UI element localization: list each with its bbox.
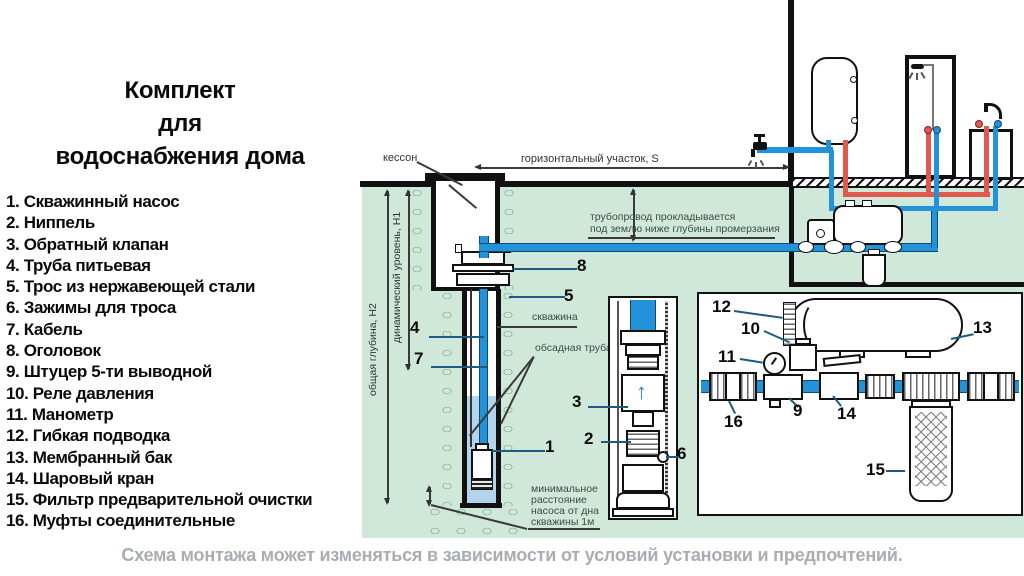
- callout-13: 13: [973, 318, 992, 338]
- cold-pipe: [826, 140, 831, 150]
- legend-item: 1. Скважинный насос: [6, 191, 362, 212]
- label-dynamic-level: динамический уровень, Н1: [391, 185, 403, 370]
- callout-15: 15: [866, 460, 885, 480]
- union-coupling: [865, 374, 895, 399]
- cold-valve-icon: [933, 126, 941, 134]
- water-heater: [811, 57, 858, 145]
- pipe-fitting: [884, 241, 902, 253]
- callout-1: 1: [545, 437, 554, 457]
- pipe-fitting-hex: [620, 330, 666, 345]
- supply-riser: [931, 208, 938, 248]
- nipple-body: [626, 430, 660, 457]
- leader-2: [601, 441, 631, 443]
- legend-item: 8. Оголовок: [6, 340, 362, 361]
- pipe-fitting: [798, 241, 814, 253]
- label-well: скважина: [532, 311, 578, 323]
- pipe-fitting: [850, 241, 866, 253]
- callout-12: 12: [712, 297, 731, 317]
- ball-valve-body: [819, 372, 859, 400]
- cold-valve-icon: [994, 120, 1002, 128]
- house-wall: [788, 0, 794, 182]
- pipeline-note-1: трубопровод прокладывается: [590, 211, 735, 223]
- legend-item: 2. Ниппель: [6, 212, 362, 233]
- station-tank-port: [862, 200, 872, 207]
- legend-item: 13. Мембранный бак: [6, 447, 362, 468]
- footer-caption: Схема монтажа может изменяться в зависим…: [0, 545, 1024, 566]
- caisson-floor: [431, 287, 500, 291]
- valve-neck: [632, 411, 654, 427]
- sink-pedestal: [969, 129, 1013, 180]
- tank-foot: [905, 350, 931, 358]
- legend-item: 15. Фильтр предварительной очистки: [6, 489, 362, 510]
- leader-4: [429, 336, 484, 338]
- label-total-depth: общая глубина, Н2: [367, 235, 379, 465]
- min-distance-underline: [528, 528, 600, 530]
- cold-pipe: [993, 126, 998, 209]
- manometer-dial: [763, 352, 786, 375]
- station-gauge: [816, 229, 825, 238]
- hot-pipe: [926, 133, 931, 195]
- ball-valve-handle: [823, 354, 862, 367]
- hot-pipe: [843, 140, 848, 196]
- fitting-drain: [769, 399, 781, 408]
- shower-spray: [916, 73, 918, 80]
- label-horizontal-section: горизонтальный участок, S: [521, 153, 659, 165]
- callout-4: 4: [410, 318, 419, 338]
- legend-item: 11. Манометр: [6, 404, 362, 425]
- legend-item: 5. Трос из нержавеющей стали: [6, 276, 362, 297]
- heater-knob: [851, 117, 858, 124]
- legend-item: 16. Муфты соединительные: [6, 510, 362, 531]
- callout-5: 5: [564, 286, 573, 306]
- arrow-right-icon: [783, 164, 790, 170]
- callout-7: 7: [414, 349, 423, 369]
- well-casing-left: [462, 289, 467, 506]
- pressure-relay-body: [789, 344, 817, 371]
- leader-15: [886, 470, 905, 472]
- station-tank-port: [845, 200, 855, 207]
- well-label-leader: [497, 326, 577, 328]
- leader-5: [509, 296, 565, 298]
- s-dimension-line: [478, 167, 787, 169]
- outdoor-tap-handle: [754, 134, 765, 137]
- callout-10: 10: [741, 319, 760, 339]
- filter-mesh: [915, 412, 947, 486]
- basement-wall: [789, 186, 794, 286]
- shower-riser: [932, 64, 934, 130]
- outdoor-tap-icon: [753, 142, 767, 150]
- pipeline-note-underline: [588, 237, 775, 239]
- pump-body-base: [612, 508, 674, 517]
- callout-16: 16: [724, 412, 743, 432]
- legend-item: 12. Гибкая подводка: [6, 425, 362, 446]
- filter-cap: [902, 372, 960, 401]
- callout-14: 14: [837, 404, 856, 424]
- arrow-up-icon: [384, 189, 390, 196]
- legend-list: 1. Скважинный насос 2. Ниппель 3. Обратн…: [6, 191, 362, 532]
- legend-item: 9. Штуцер 5-ти выводной: [6, 361, 362, 382]
- label-kesson: кессон: [383, 152, 417, 164]
- sink-faucet-spout: [984, 103, 988, 112]
- sink-faucet-icon: [986, 103, 1002, 119]
- leader-1: [492, 450, 545, 452]
- heater-knob: [850, 76, 857, 83]
- stones-band: [438, 290, 464, 506]
- submersible-pump: [471, 449, 493, 480]
- pump-detail-panel: ↑: [608, 296, 678, 520]
- hot-pipe: [984, 126, 989, 196]
- wellhead-flange: [452, 264, 514, 272]
- tap-drip: [748, 160, 752, 166]
- arrow-left-icon: [474, 164, 481, 170]
- legend-item: 14. Шаровый кран: [6, 468, 362, 489]
- cold-pipe: [829, 150, 834, 211]
- legend-item: 10. Реле давления: [6, 383, 362, 404]
- caisson-lid: [425, 173, 505, 181]
- arrow-down-icon: [405, 364, 411, 371]
- callout-11: 11: [718, 347, 736, 367]
- title-line-3: водоснабжения дома: [28, 140, 332, 173]
- flow-arrow-icon: ↑: [636, 381, 647, 403]
- station-tank: [833, 205, 903, 245]
- drink-pipe-section: [630, 300, 656, 332]
- callout-8: 8: [577, 256, 586, 276]
- page-title: Комплект для водоснабжения дома: [28, 74, 332, 173]
- pump-body-top: [616, 492, 670, 509]
- leader-8: [512, 268, 577, 270]
- station-filter: [862, 254, 886, 287]
- well-bottom: [460, 503, 502, 508]
- label-casing: обсадная труба: [535, 342, 612, 354]
- legend-item: 3. Обратный клапан: [6, 234, 362, 255]
- arrow-up-icon: [426, 485, 432, 492]
- tap-drip: [755, 162, 757, 168]
- tap-drip: [760, 160, 764, 166]
- wellhead-base: [456, 273, 510, 286]
- pump-top-hex: [622, 464, 664, 492]
- arrow-up-icon: [405, 189, 411, 196]
- arrow-up-icon: [630, 188, 636, 195]
- hot-valve-icon: [924, 126, 932, 134]
- caisson-wall-left: [431, 179, 436, 291]
- hot-pipe: [843, 192, 990, 197]
- arrow-down-icon: [384, 498, 390, 505]
- legend-item: 6. Зажимы для троса: [6, 297, 362, 318]
- infographic-water-supply-kit: Комплект для водоснабжения дома 1. Скваж…: [0, 0, 1024, 576]
- cold-pipe: [934, 133, 939, 209]
- pump-intake-ribs: [471, 479, 493, 490]
- leader-3: [588, 406, 628, 408]
- callout-3: 3: [572, 392, 581, 412]
- drop-pipe: [479, 289, 488, 451]
- basement-floor-line: [789, 282, 1024, 287]
- five-way-fitting-body: [763, 374, 803, 400]
- stones-band: [499, 290, 524, 506]
- leader-7: [431, 366, 487, 368]
- callout-9: 9: [793, 401, 802, 421]
- min-distance-note-4: скважины 1м: [531, 516, 594, 528]
- wellhead-bolt: [455, 244, 462, 253]
- title-line-2: для: [28, 107, 332, 140]
- ground-line: [360, 181, 795, 187]
- dimension-h1-line: [408, 191, 410, 369]
- hot-valve-icon: [975, 120, 983, 128]
- pipeline-note-2: под землю ниже глубины промерзания: [590, 223, 780, 235]
- callout-2: 2: [584, 429, 593, 449]
- threaded-section: [627, 355, 659, 370]
- coupling-right-band: [983, 372, 999, 401]
- pipe-fitting: [824, 240, 844, 254]
- title-line-1: Комплект: [28, 74, 332, 107]
- dimension-h2-line: [387, 191, 389, 503]
- pump-cable: [470, 289, 472, 447]
- outdoor-tap-stem: [758, 137, 761, 143]
- stones-band: [426, 506, 524, 538]
- coupling-left-band: [725, 372, 741, 401]
- legend-item: 7. Кабель: [6, 319, 362, 340]
- callout-6: 6: [677, 444, 686, 464]
- outdoor-tap-spout: [751, 149, 755, 157]
- legend-item: 4. Труба питьевая: [6, 255, 362, 276]
- cold-pipe: [757, 147, 833, 153]
